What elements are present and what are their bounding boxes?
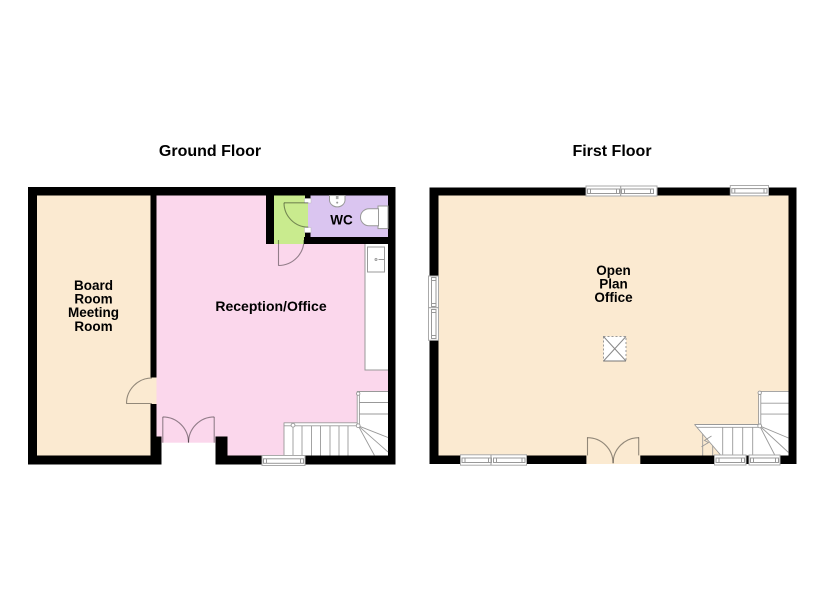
svg-text:Reception/Office: Reception/Office xyxy=(215,298,326,314)
svg-text:Room: Room xyxy=(74,319,112,334)
svg-text:First Floor: First Floor xyxy=(572,143,651,160)
svg-text:Office: Office xyxy=(594,290,633,305)
svg-text:WC: WC xyxy=(330,212,353,227)
svg-text:Ground Floor: Ground Floor xyxy=(159,143,261,160)
